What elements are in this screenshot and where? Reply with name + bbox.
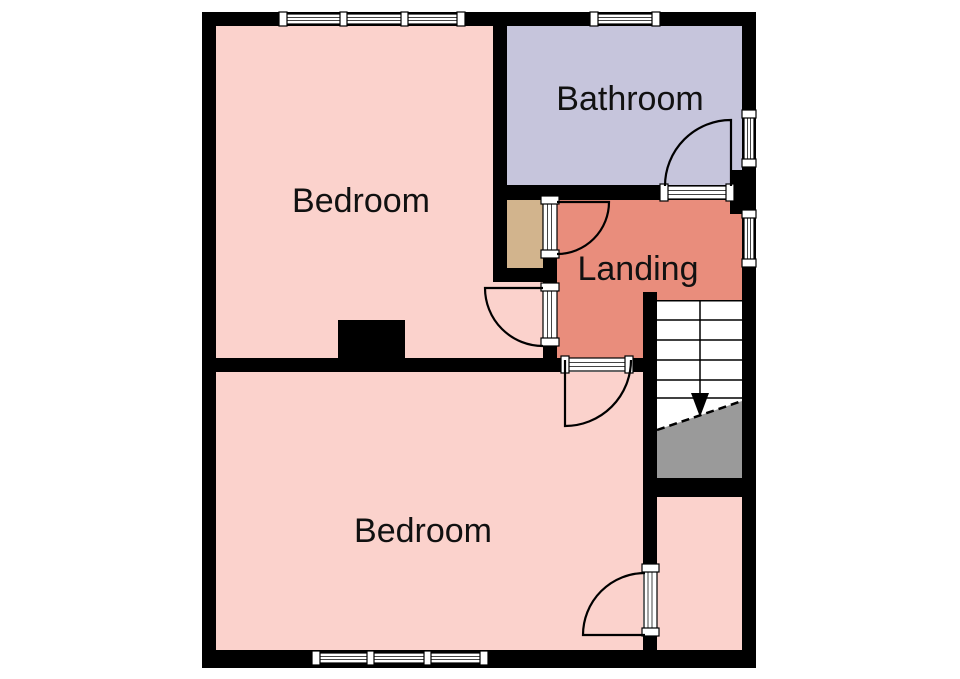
wall-outer-left — [202, 12, 216, 668]
window-end-cap — [742, 159, 756, 167]
stairs — [657, 300, 742, 478]
window-mullion — [340, 12, 347, 26]
window-end-cap — [312, 651, 320, 665]
wall-boxroom-left-lower — [643, 635, 657, 650]
wall-landing-left-stub-lower — [543, 346, 557, 360]
label-bedroom-front: Bedroom — [292, 182, 430, 220]
window-end-cap — [742, 259, 756, 267]
wall-bedroom-bathroom — [493, 26, 507, 282]
room-landing-lower — [557, 300, 643, 360]
door-jamb — [541, 250, 559, 258]
wall-bedroom-divider — [216, 358, 563, 372]
window-end-cap — [457, 12, 465, 26]
window-mullion — [367, 651, 374, 665]
window-end-cap — [652, 12, 660, 26]
door-opening-boxroom — [642, 564, 659, 636]
window-mullion — [424, 651, 431, 665]
door-jamb — [660, 184, 668, 201]
door-opening-bathroom — [660, 184, 734, 201]
room-bedroom-back — [216, 372, 643, 650]
door-jamb — [541, 283, 559, 291]
label-bathroom: Bathroom — [556, 80, 703, 118]
window-end-cap — [742, 210, 756, 218]
window-landing-right — [742, 210, 756, 267]
label-landing: Landing — [577, 250, 698, 288]
door-jamb — [726, 184, 734, 201]
wall-boxroom-left-upper — [643, 497, 657, 567]
window-end-cap — [742, 110, 756, 118]
window-end-cap — [279, 12, 287, 26]
wall-stairs-bottom — [643, 478, 756, 497]
wall-chimney-breast — [338, 320, 405, 360]
door-jamb — [541, 196, 559, 204]
room-cupboard — [507, 200, 543, 268]
window-end-cap — [480, 651, 488, 665]
door-opening-bedroom-front — [541, 283, 559, 346]
floor-plan: Bedroom Bathroom Landing Bedroom — [0, 0, 960, 679]
window-mullion — [401, 12, 408, 26]
window-bathroom-top — [590, 12, 660, 26]
room-boxroom — [657, 497, 742, 650]
wall-stairs-left — [643, 292, 657, 500]
door-opening-bedroom-back — [561, 356, 633, 373]
label-bedroom-back: Bedroom — [354, 512, 492, 550]
window-end-cap — [590, 12, 598, 26]
door-jamb — [541, 338, 559, 346]
door-jamb — [642, 564, 659, 572]
wall-cupboard-bottom — [493, 268, 543, 282]
door-opening-cupboard — [541, 196, 559, 258]
window-bedroom-back — [312, 651, 488, 665]
window-bathroom-right — [742, 110, 756, 167]
window-bedroom-front — [279, 12, 465, 26]
